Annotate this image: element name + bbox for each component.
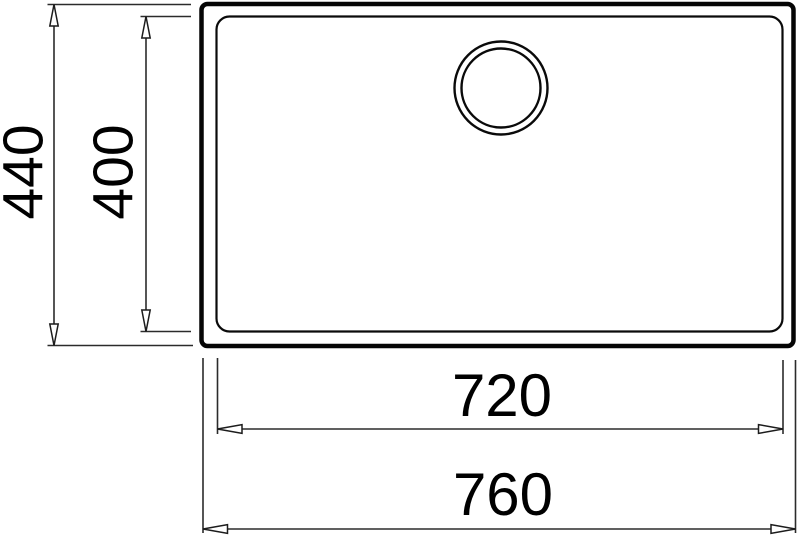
dimension-label-overall-depth: 440 (0, 124, 56, 219)
arrowhead-right-icon (771, 525, 796, 534)
drawing-canvas: 440 400 720 760 (0, 0, 800, 535)
sink-technical-drawing: 440 400 720 760 (0, 0, 800, 535)
sink-outline (202, 4, 794, 346)
dimension-label-bowl-depth: 400 (82, 124, 146, 219)
arrowhead-left-icon (203, 525, 228, 534)
dimension-bowl-width: 720 (218, 358, 784, 434)
arrowhead-down-icon (142, 310, 150, 332)
dimension-label-bowl-width: 720 (452, 362, 552, 429)
arrowhead-down-icon (50, 324, 58, 346)
sink-outer-rim (202, 4, 794, 346)
dimension-bowl-depth: 400 (82, 17, 192, 332)
arrowhead-up-icon (142, 17, 150, 39)
arrowhead-right-icon (759, 425, 784, 434)
arrowhead-up-icon (50, 5, 58, 27)
arrowhead-left-icon (218, 425, 243, 434)
dimension-label-overall-width: 760 (453, 461, 553, 528)
